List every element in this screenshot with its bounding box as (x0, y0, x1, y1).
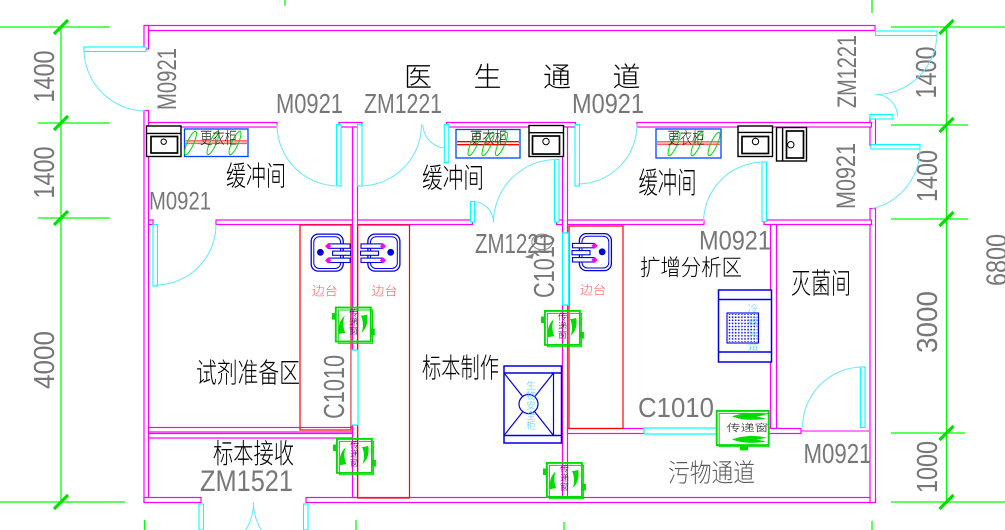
svg-text:1000: 1000 (912, 441, 944, 493)
svg-text:C1010: C1010 (319, 355, 351, 419)
svg-text:1400: 1400 (29, 51, 61, 103)
svg-text:C1010: C1010 (638, 392, 714, 423)
svg-text:M0921: M0921 (149, 188, 211, 216)
svg-text:ZM1221: ZM1221 (832, 35, 862, 108)
svg-text:M0921: M0921 (152, 48, 182, 110)
svg-text:M0921: M0921 (804, 438, 872, 469)
svg-text:M0921: M0921 (699, 226, 771, 256)
svg-text:M0921: M0921 (572, 88, 644, 119)
svg-text:1400: 1400 (911, 47, 943, 99)
svg-text:1400: 1400 (29, 147, 61, 199)
svg-text:1400: 1400 (912, 150, 944, 202)
svg-text:ZM1521: ZM1521 (200, 465, 293, 498)
svg-text:4000: 4000 (29, 331, 61, 389)
svg-text:ZM1221: ZM1221 (364, 88, 442, 119)
svg-text:M0921: M0921 (276, 88, 343, 119)
svg-text:C1010: C1010 (529, 234, 561, 298)
svg-text:6800: 6800 (982, 234, 1005, 286)
svg-text:M0921: M0921 (831, 143, 861, 209)
svg-text:3000: 3000 (912, 291, 944, 353)
